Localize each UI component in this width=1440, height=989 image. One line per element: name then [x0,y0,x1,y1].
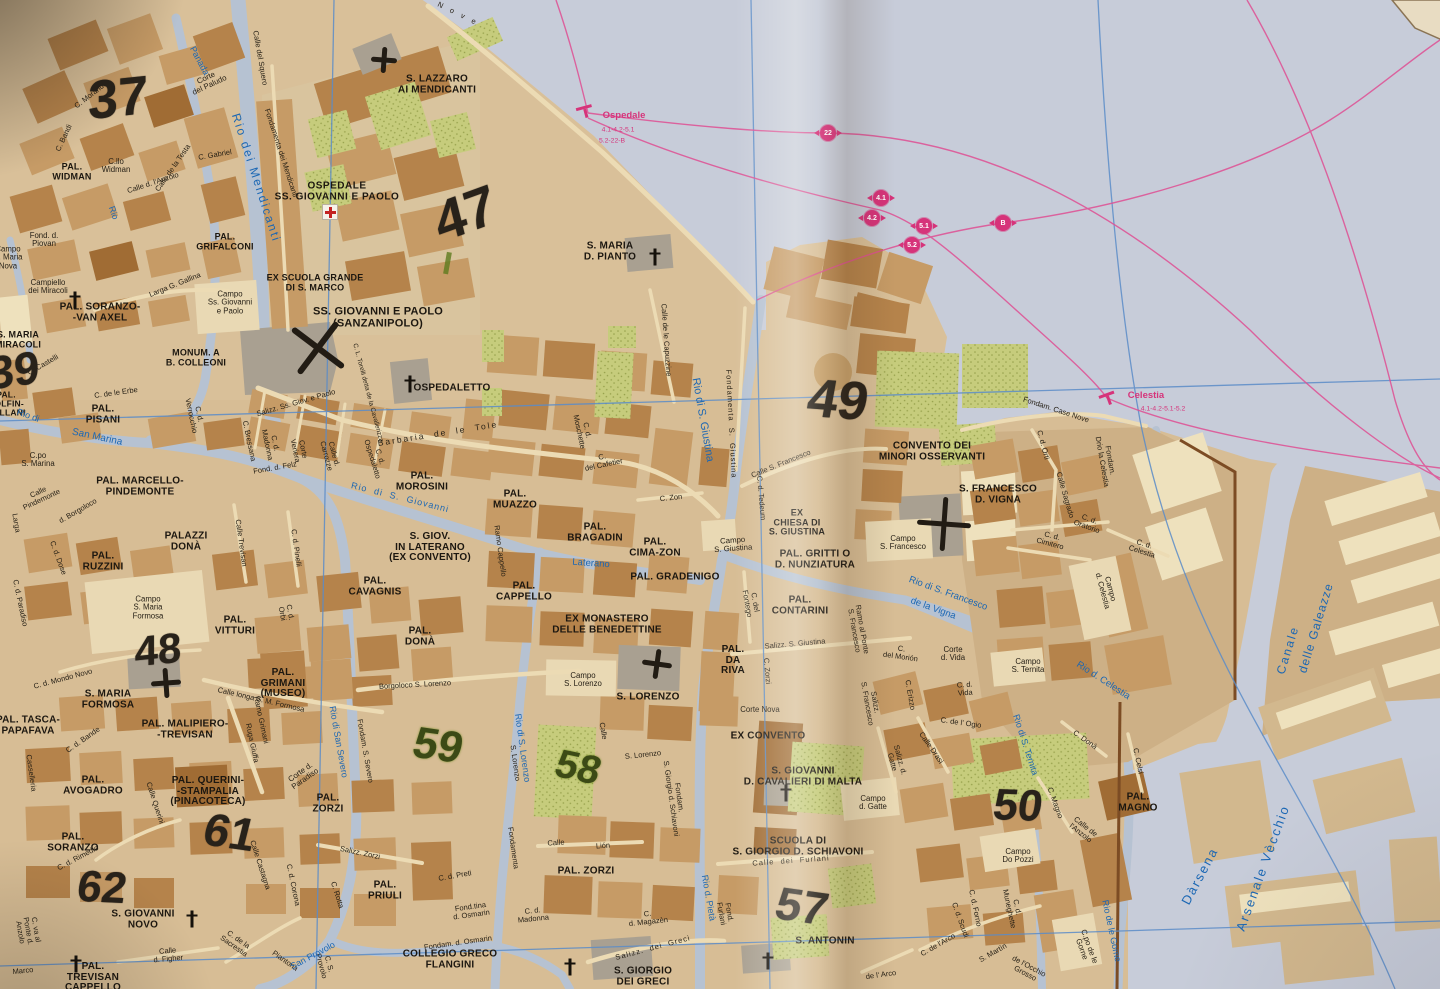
handwritten-number: 50 [990,780,1046,831]
handwritten-number: 47 [428,171,502,256]
handwritten-number: 37 [88,64,148,133]
handwritten-cross-mark [915,495,973,553]
handwritten-cross-mark [370,46,398,74]
handwritten-number: 49 [803,367,874,433]
handwritten-cross-mark [150,667,182,699]
handwritten-number: 58 [549,742,607,794]
handwritten-number: 57 [770,876,834,936]
handwritten-annotations-layer: 3747394948595861625057 [0,0,1440,989]
handwritten-number: 39 [0,339,40,400]
handwritten-cross-mark [282,312,354,384]
handwritten-cross-mark [640,647,674,681]
handwritten-number: 62 [74,862,131,914]
venice-paper-map-photo: OSPEDALE SS. GIOVANNI E PAOLOS. LAZZARO … [0,0,1440,989]
handwritten-number: 59 [408,718,469,774]
handwritten-number: 61 [198,802,262,862]
